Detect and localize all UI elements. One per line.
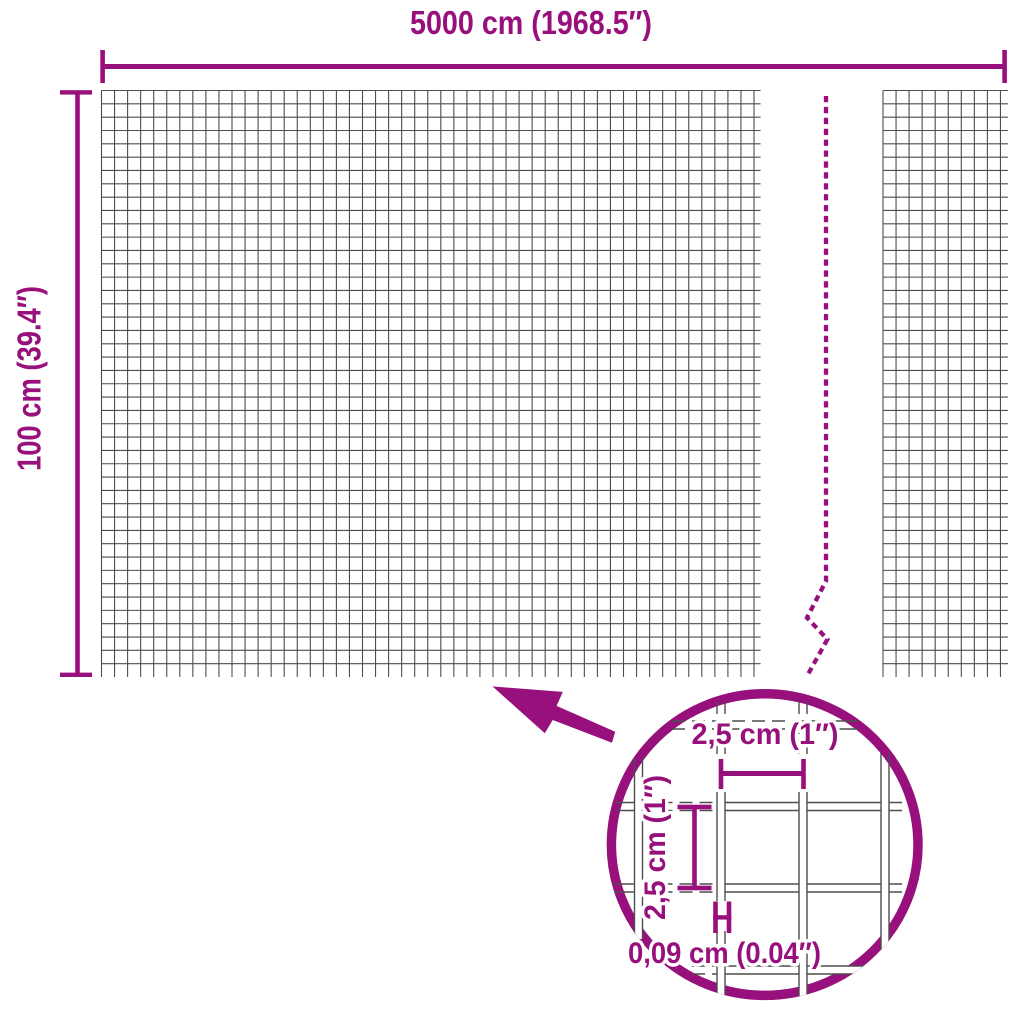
svg-text:100 cm (39.4″): 100 cm (39.4″) — [11, 286, 48, 471]
svg-text:2,5 cm (1″): 2,5 cm (1″) — [639, 775, 672, 920]
svg-text:0,09 cm (0.04″): 0,09 cm (0.04″) — [628, 937, 821, 970]
svg-text:2,5 cm (1″): 2,5 cm (1″) — [692, 718, 839, 751]
svg-text:5000 cm (1968.5″): 5000 cm (1968.5″) — [410, 4, 652, 41]
